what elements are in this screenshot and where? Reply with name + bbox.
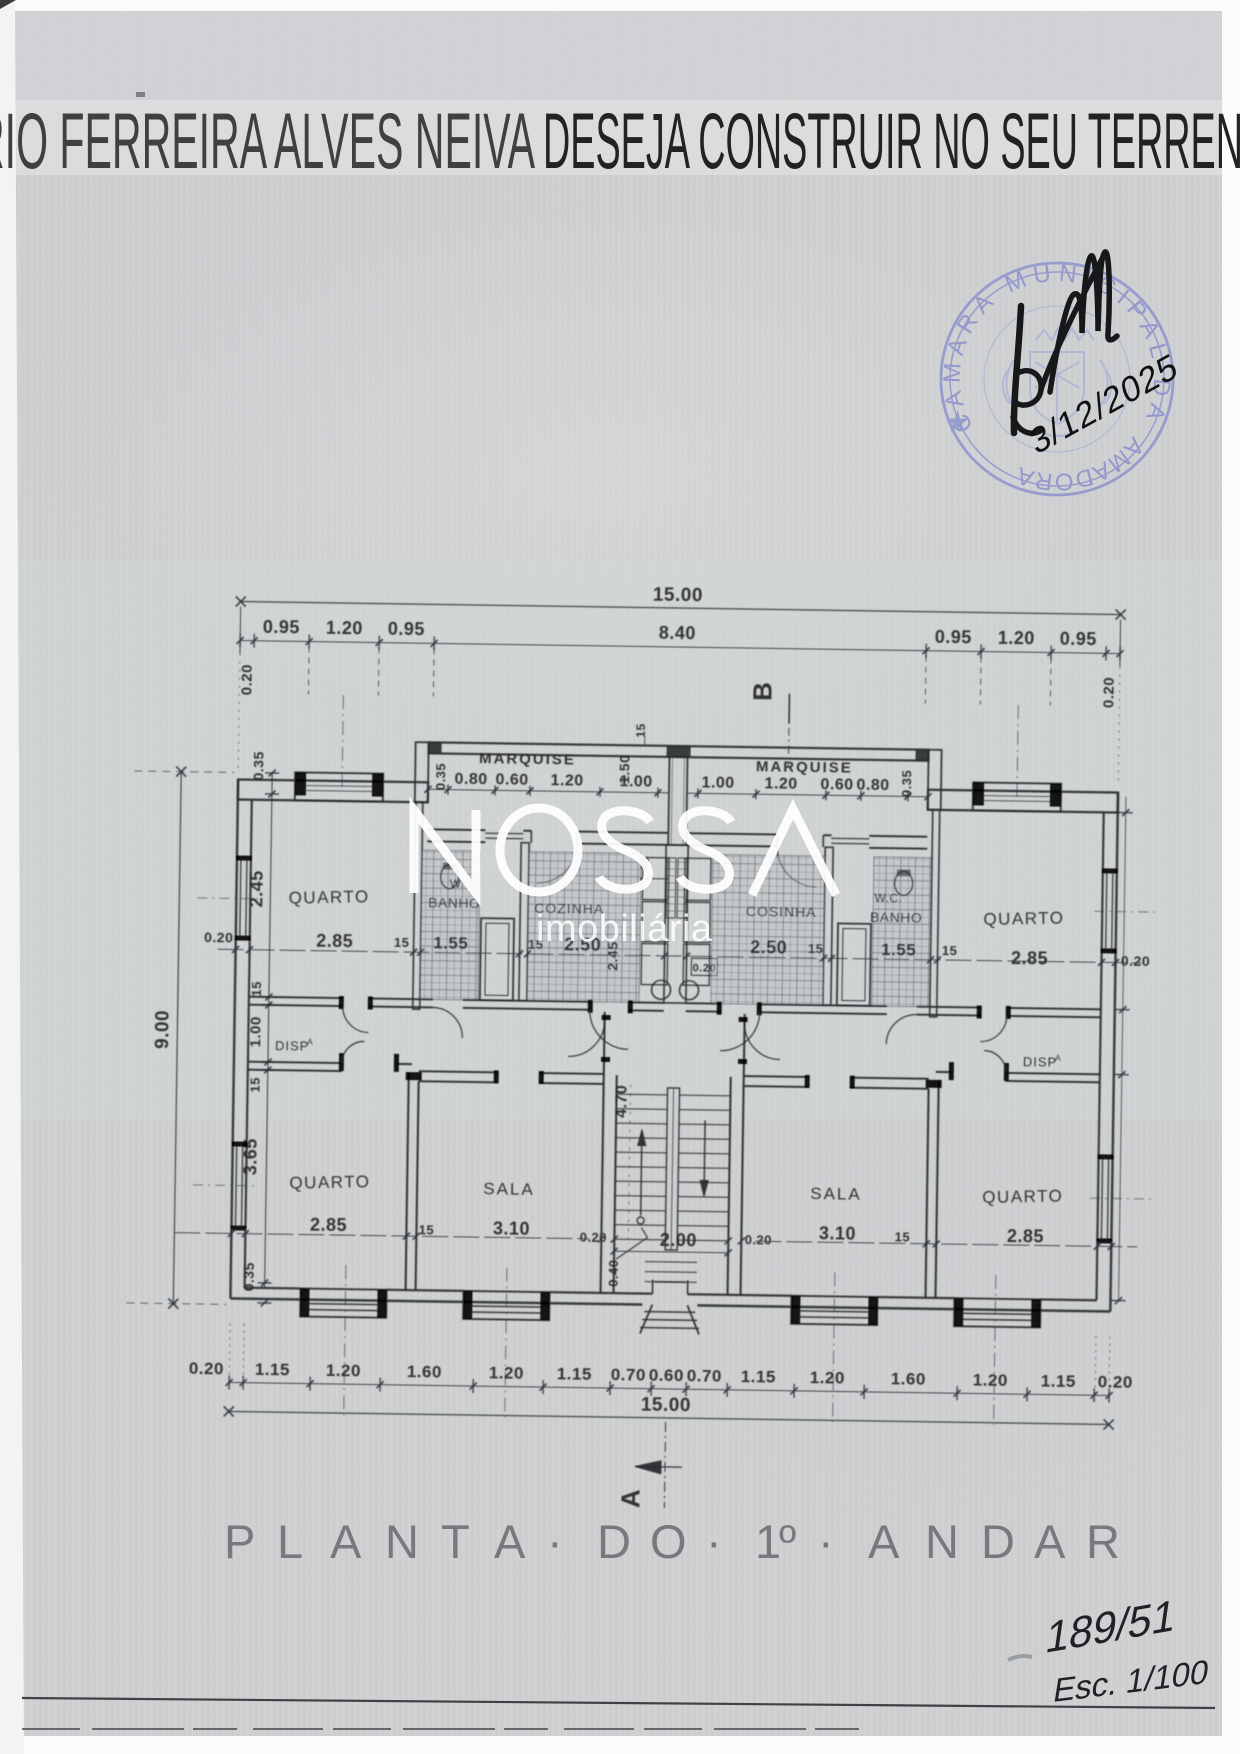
svg-text:0.70: 0.70: [687, 1366, 722, 1386]
svg-text:0.35: 0.35: [250, 751, 266, 780]
svg-text:RIO FERREIRA ALVES NEIVA: RIO FERREIRA ALVES NEIVA: [0, 96, 535, 185]
svg-text:MARQUISE: MARQUISE: [479, 750, 576, 768]
svg-text:1.20: 1.20: [764, 775, 797, 792]
svg-text:B: B: [747, 681, 777, 701]
svg-text:1.20: 1.20: [973, 1370, 1008, 1390]
svg-text:0.60: 0.60: [495, 771, 528, 788]
svg-text:0.60: 0.60: [649, 1366, 684, 1386]
svg-text:2.00: 2.00: [660, 1230, 697, 1251]
svg-text:QUARTO: QUARTO: [983, 908, 1064, 929]
svg-text:0.20: 0.20: [1100, 677, 1117, 708]
svg-text:1.20: 1.20: [489, 1363, 524, 1383]
svg-text:15: 15: [942, 943, 958, 958]
svg-text:COSINHA: COSINHA: [746, 903, 817, 920]
svg-text:9.00: 9.00: [152, 1010, 174, 1049]
svg-text:1.60: 1.60: [407, 1362, 442, 1382]
svg-text:SALA: SALA: [483, 1179, 535, 1199]
svg-text:0.80: 0.80: [454, 771, 487, 788]
svg-text:0.95: 0.95: [388, 619, 425, 640]
svg-text:0.35: 0.35: [899, 770, 914, 798]
svg-text:A: A: [307, 1038, 313, 1047]
svg-text:imobiliária: imobiliária: [536, 908, 713, 950]
svg-text:W.C.: W.C.: [874, 891, 902, 905]
svg-text:A: A: [615, 1489, 645, 1509]
svg-text:0.70: 0.70: [611, 1365, 646, 1385]
svg-text:0.60: 0.60: [820, 776, 853, 793]
svg-text:BANHO: BANHO: [870, 909, 923, 926]
svg-text:PLANTA·DO·1º·ANDAR: PLANTA·DO·1º·ANDAR: [224, 1515, 1120, 1568]
svg-text:BANHO: BANHO: [428, 894, 481, 911]
svg-text:1.00: 1.00: [701, 774, 734, 791]
svg-text:QUARTO: QUARTO: [982, 1186, 1063, 1207]
svg-text:MARQUISE: MARQUISE: [756, 758, 853, 776]
svg-text:DISP: DISP: [275, 1038, 310, 1054]
svg-text:1.50: 1.50: [616, 754, 632, 783]
svg-text:1.20: 1.20: [326, 618, 363, 639]
svg-text:15: 15: [247, 1077, 262, 1093]
svg-text:8.40: 8.40: [659, 623, 696, 644]
svg-text:1.15: 1.15: [741, 1367, 776, 1387]
svg-text:0.20: 0.20: [204, 929, 233, 945]
svg-text:1.15: 1.15: [255, 1360, 290, 1380]
svg-text:0.35: 0.35: [433, 763, 448, 791]
svg-text:1.20: 1.20: [810, 1368, 845, 1388]
svg-text:2.50: 2.50: [750, 937, 787, 958]
svg-text:15: 15: [634, 723, 648, 738]
svg-text:15.00: 15.00: [653, 585, 703, 607]
svg-text:15.00: 15.00: [641, 1395, 691, 1417]
svg-text:0.95: 0.95: [1060, 629, 1097, 650]
svg-text:0.20: 0.20: [1098, 1372, 1133, 1392]
svg-text:0.80: 0.80: [856, 777, 889, 794]
svg-text:0.20: 0.20: [745, 1232, 773, 1247]
svg-text:2.85: 2.85: [1007, 1226, 1044, 1247]
svg-text:1.60: 1.60: [891, 1369, 926, 1389]
svg-text:★: ★: [944, 406, 971, 439]
svg-text:1.55: 1.55: [433, 933, 468, 953]
svg-text:1.20: 1.20: [326, 1361, 361, 1381]
svg-text:SALA: SALA: [810, 1184, 862, 1204]
svg-text:0.95: 0.95: [935, 627, 972, 648]
svg-text:2.85: 2.85: [310, 1215, 347, 1236]
svg-text:DISP: DISP: [1023, 1054, 1058, 1070]
svg-text:15: 15: [808, 941, 824, 956]
svg-text:15: 15: [394, 935, 410, 950]
svg-text:3.10: 3.10: [819, 1223, 856, 1244]
svg-text:15: 15: [419, 1222, 435, 1237]
svg-text:3.10: 3.10: [493, 1218, 530, 1239]
svg-text:1.00: 1.00: [247, 1016, 264, 1047]
svg-text:4.70: 4.70: [613, 1085, 630, 1118]
svg-text:DESEJA CONSTRUIR NO SEU TERREN: DESEJA CONSTRUIR NO SEU TERREN: [543, 96, 1240, 185]
svg-text:A: A: [1055, 1054, 1061, 1063]
svg-text:2.85: 2.85: [316, 931, 353, 952]
svg-text:15: 15: [895, 1229, 911, 1244]
svg-text:0.95: 0.95: [263, 617, 300, 638]
svg-text:QUARTO: QUARTO: [288, 887, 369, 908]
svg-text:15: 15: [249, 981, 264, 997]
svg-text:0.20: 0.20: [1121, 953, 1150, 969]
svg-text:1.15: 1.15: [557, 1364, 592, 1384]
svg-text:0.20: 0.20: [189, 1359, 224, 1379]
svg-text:1.20: 1.20: [998, 628, 1035, 649]
svg-text:0.40: 0.40: [606, 1259, 621, 1287]
svg-text:1.15: 1.15: [1041, 1371, 1076, 1391]
svg-text:0.20: 0.20: [238, 664, 255, 695]
svg-text:QUARTO: QUARTO: [289, 1172, 370, 1193]
svg-text:2.85: 2.85: [1011, 948, 1048, 969]
svg-text:1.20: 1.20: [550, 772, 583, 789]
svg-text:1.55: 1.55: [881, 940, 916, 960]
